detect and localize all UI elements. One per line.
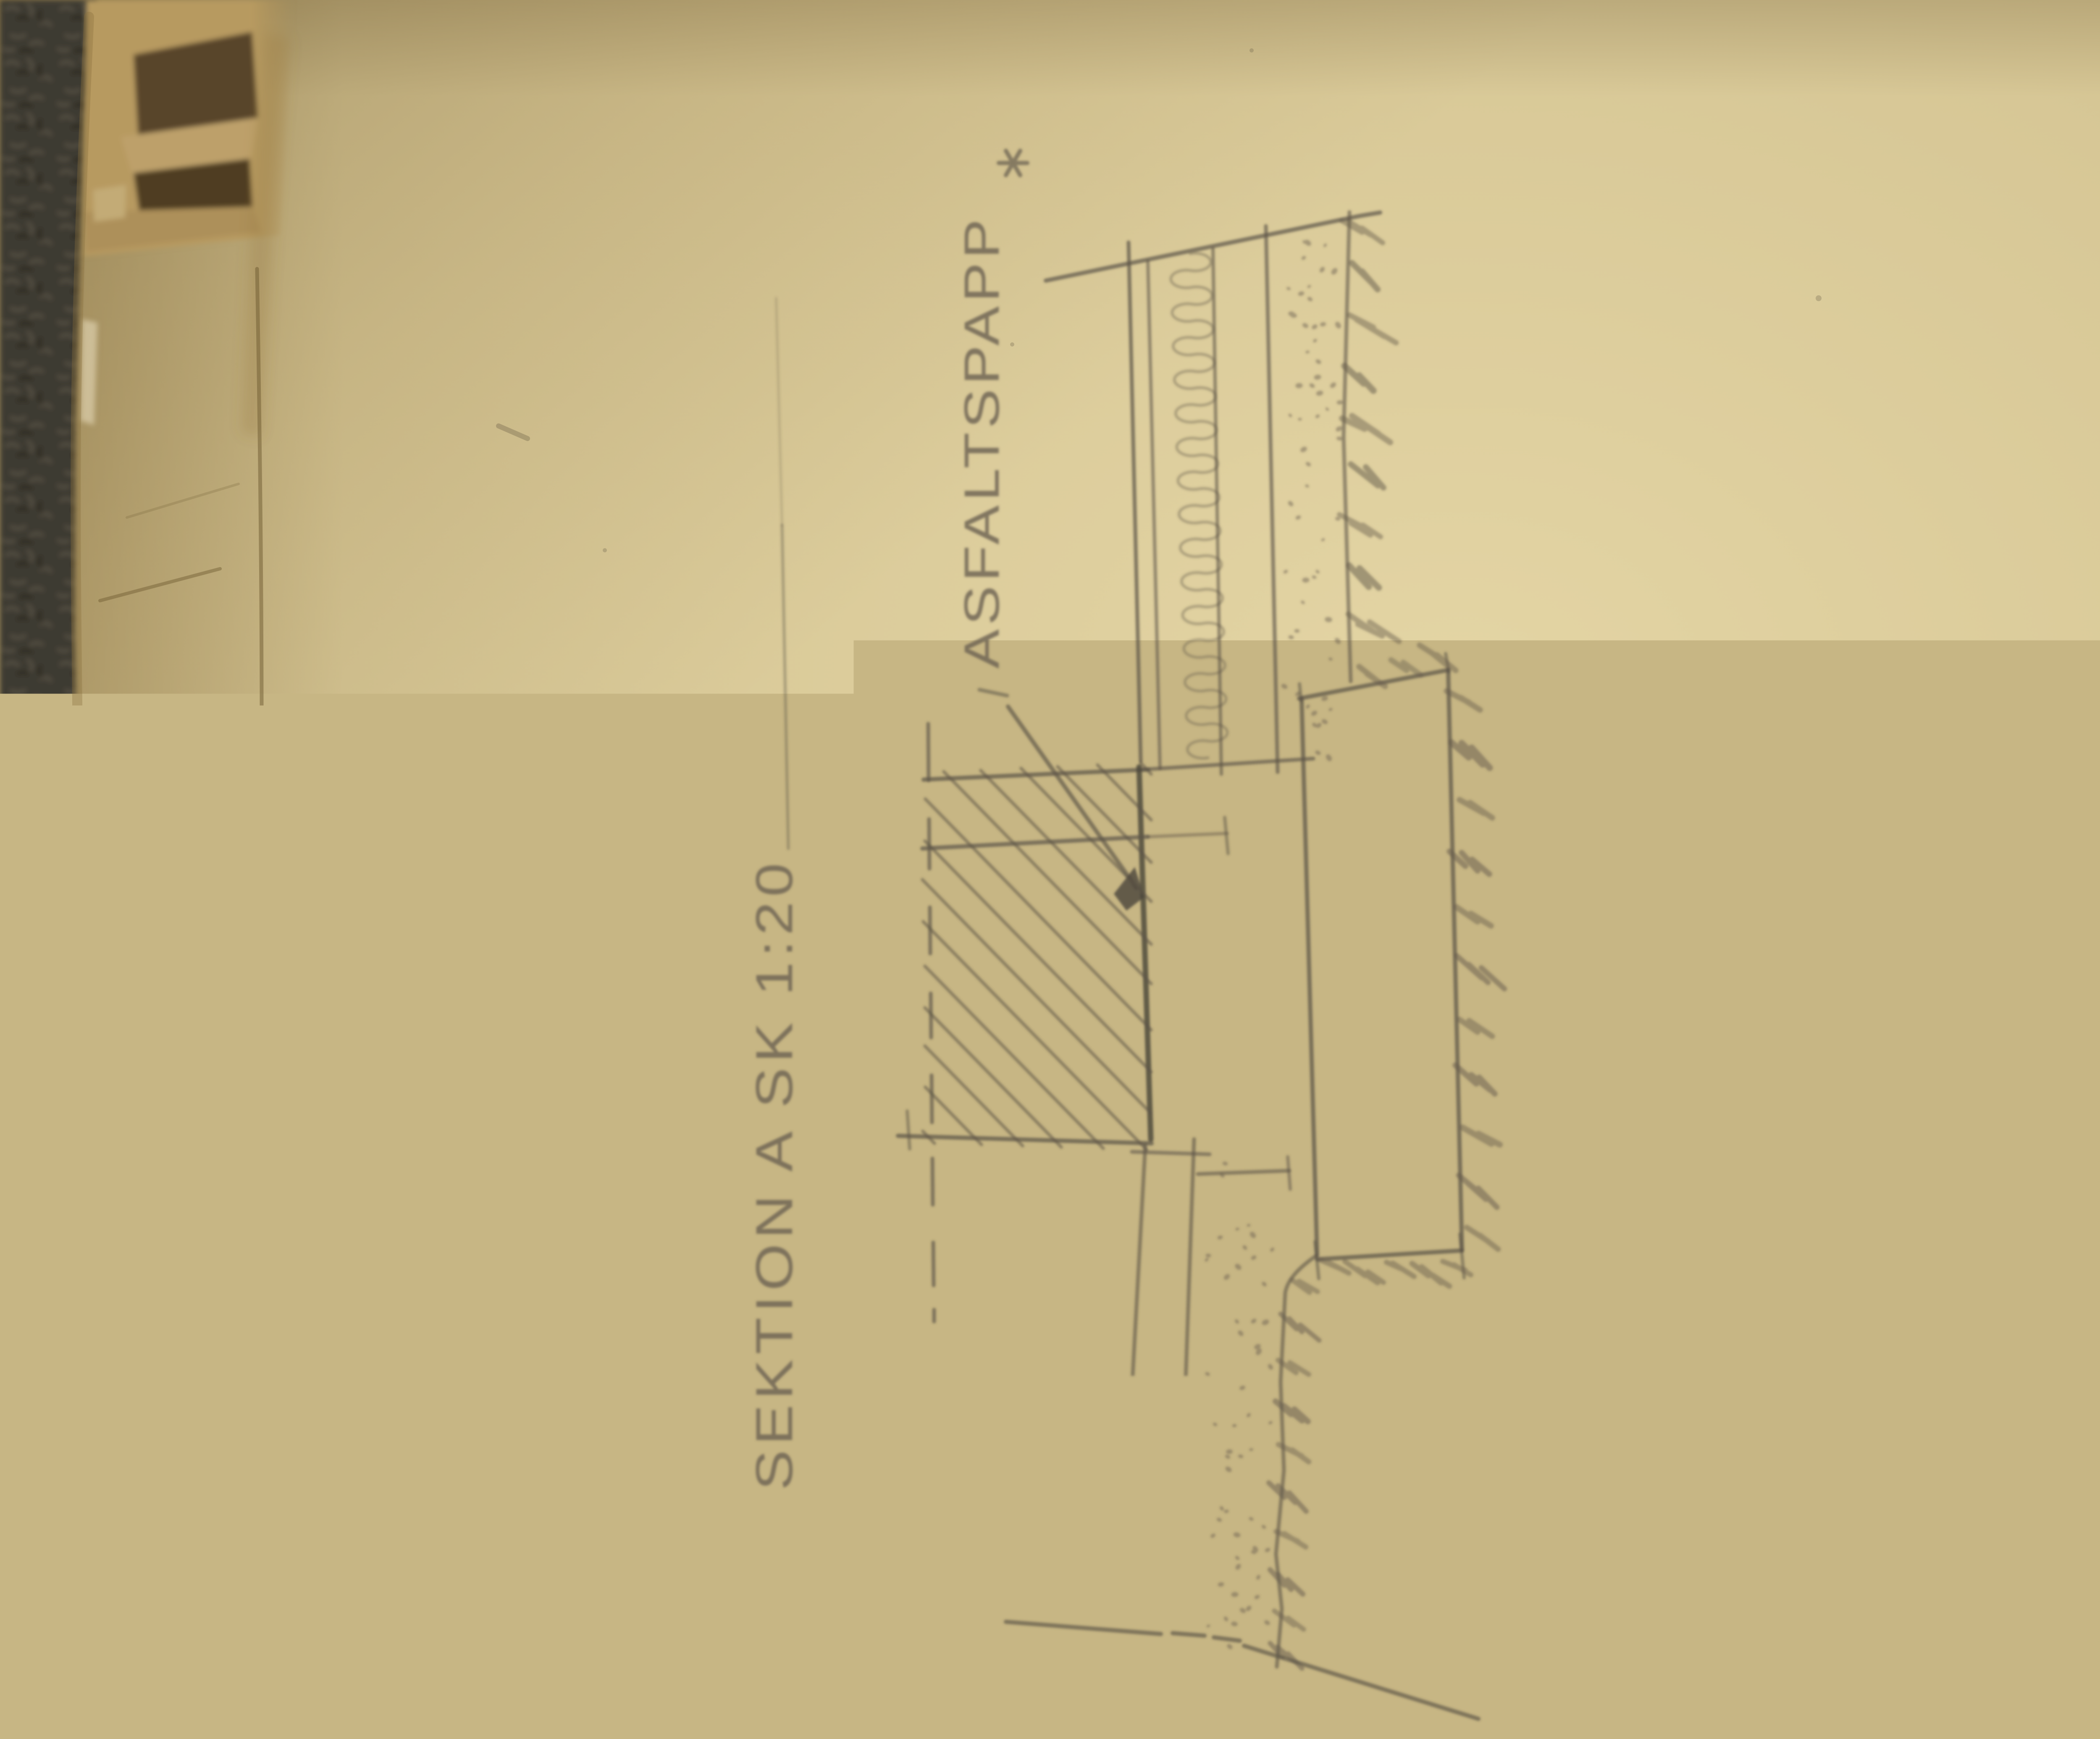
svg-text:SEKTION A SK 1:20: SEKTION A SK 1:20 (745, 858, 803, 1490)
svg-text:ASFALTSPAPP: ASFALTSPAPP (954, 215, 1010, 669)
